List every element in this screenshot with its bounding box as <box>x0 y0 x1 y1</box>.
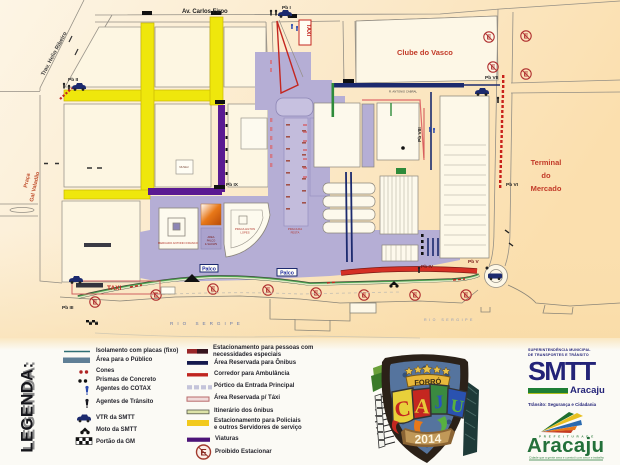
svg-text:Pb IV: Pb IV <box>421 264 434 270</box>
svg-text:TAXI: TAXI <box>107 285 122 292</box>
svg-text:RIO SERGIPE: RIO SERGIPE <box>424 318 475 322</box>
svg-text:E: E <box>200 447 206 458</box>
svg-text:J: J <box>433 392 444 414</box>
svg-text:PALCO: PALCO <box>207 239 216 243</box>
svg-text:A: A <box>414 394 432 419</box>
svg-text:do: do <box>541 171 551 180</box>
svg-text:Pb V: Pb V <box>468 259 479 265</box>
svg-text:Pb VI: Pb VI <box>506 182 519 188</box>
svg-text:U: U <box>449 395 465 417</box>
svg-text:R. ANTONIO CABRAL: R. ANTONIO CABRAL <box>389 90 418 94</box>
svg-text:Pb II: Pb II <box>68 77 79 83</box>
svg-text:Pb VIII: Pb VIII <box>417 127 423 142</box>
svg-text:TAXI: TAXI <box>305 24 311 37</box>
svg-text:RIO SERGIPE: RIO SERGIPE <box>170 321 244 326</box>
svg-text:Aracaju: Aracaju <box>527 434 604 457</box>
svg-text:MUSEU: MUSEU <box>179 165 188 169</box>
svg-text:AREA: AREA <box>207 235 214 239</box>
svg-text:Av. Carlos Firpo: Av. Carlos Firpo <box>182 9 228 15</box>
svg-text:Palco: Palco <box>280 271 294 277</box>
svg-text:Pb III: Pb III <box>62 305 74 311</box>
svg-text:FESTA: FESTA <box>291 231 300 235</box>
svg-text:2014: 2014 <box>414 432 441 447</box>
svg-text:& SHOWS: & SHOWS <box>205 242 218 246</box>
svg-text:Terminal: Terminal <box>531 158 562 167</box>
svg-text:Clube do Vasco: Clube do Vasco <box>397 48 453 57</box>
svg-text:Pb IX: Pb IX <box>226 182 239 188</box>
svg-text:Mercado: Mercado <box>531 184 562 193</box>
svg-text:Pb VII: Pb VII <box>485 75 499 81</box>
svg-text:Palco: Palco <box>202 267 216 273</box>
svg-text:LOPES: LOPES <box>240 231 249 235</box>
svg-text:Cidade que a gente ama e const: Cidade que a gente ama e constrói com am… <box>529 456 604 460</box>
svg-text:MERCADO ANTONIO FRANCO: MERCADO ANTONIO FRANCO <box>158 241 199 245</box>
